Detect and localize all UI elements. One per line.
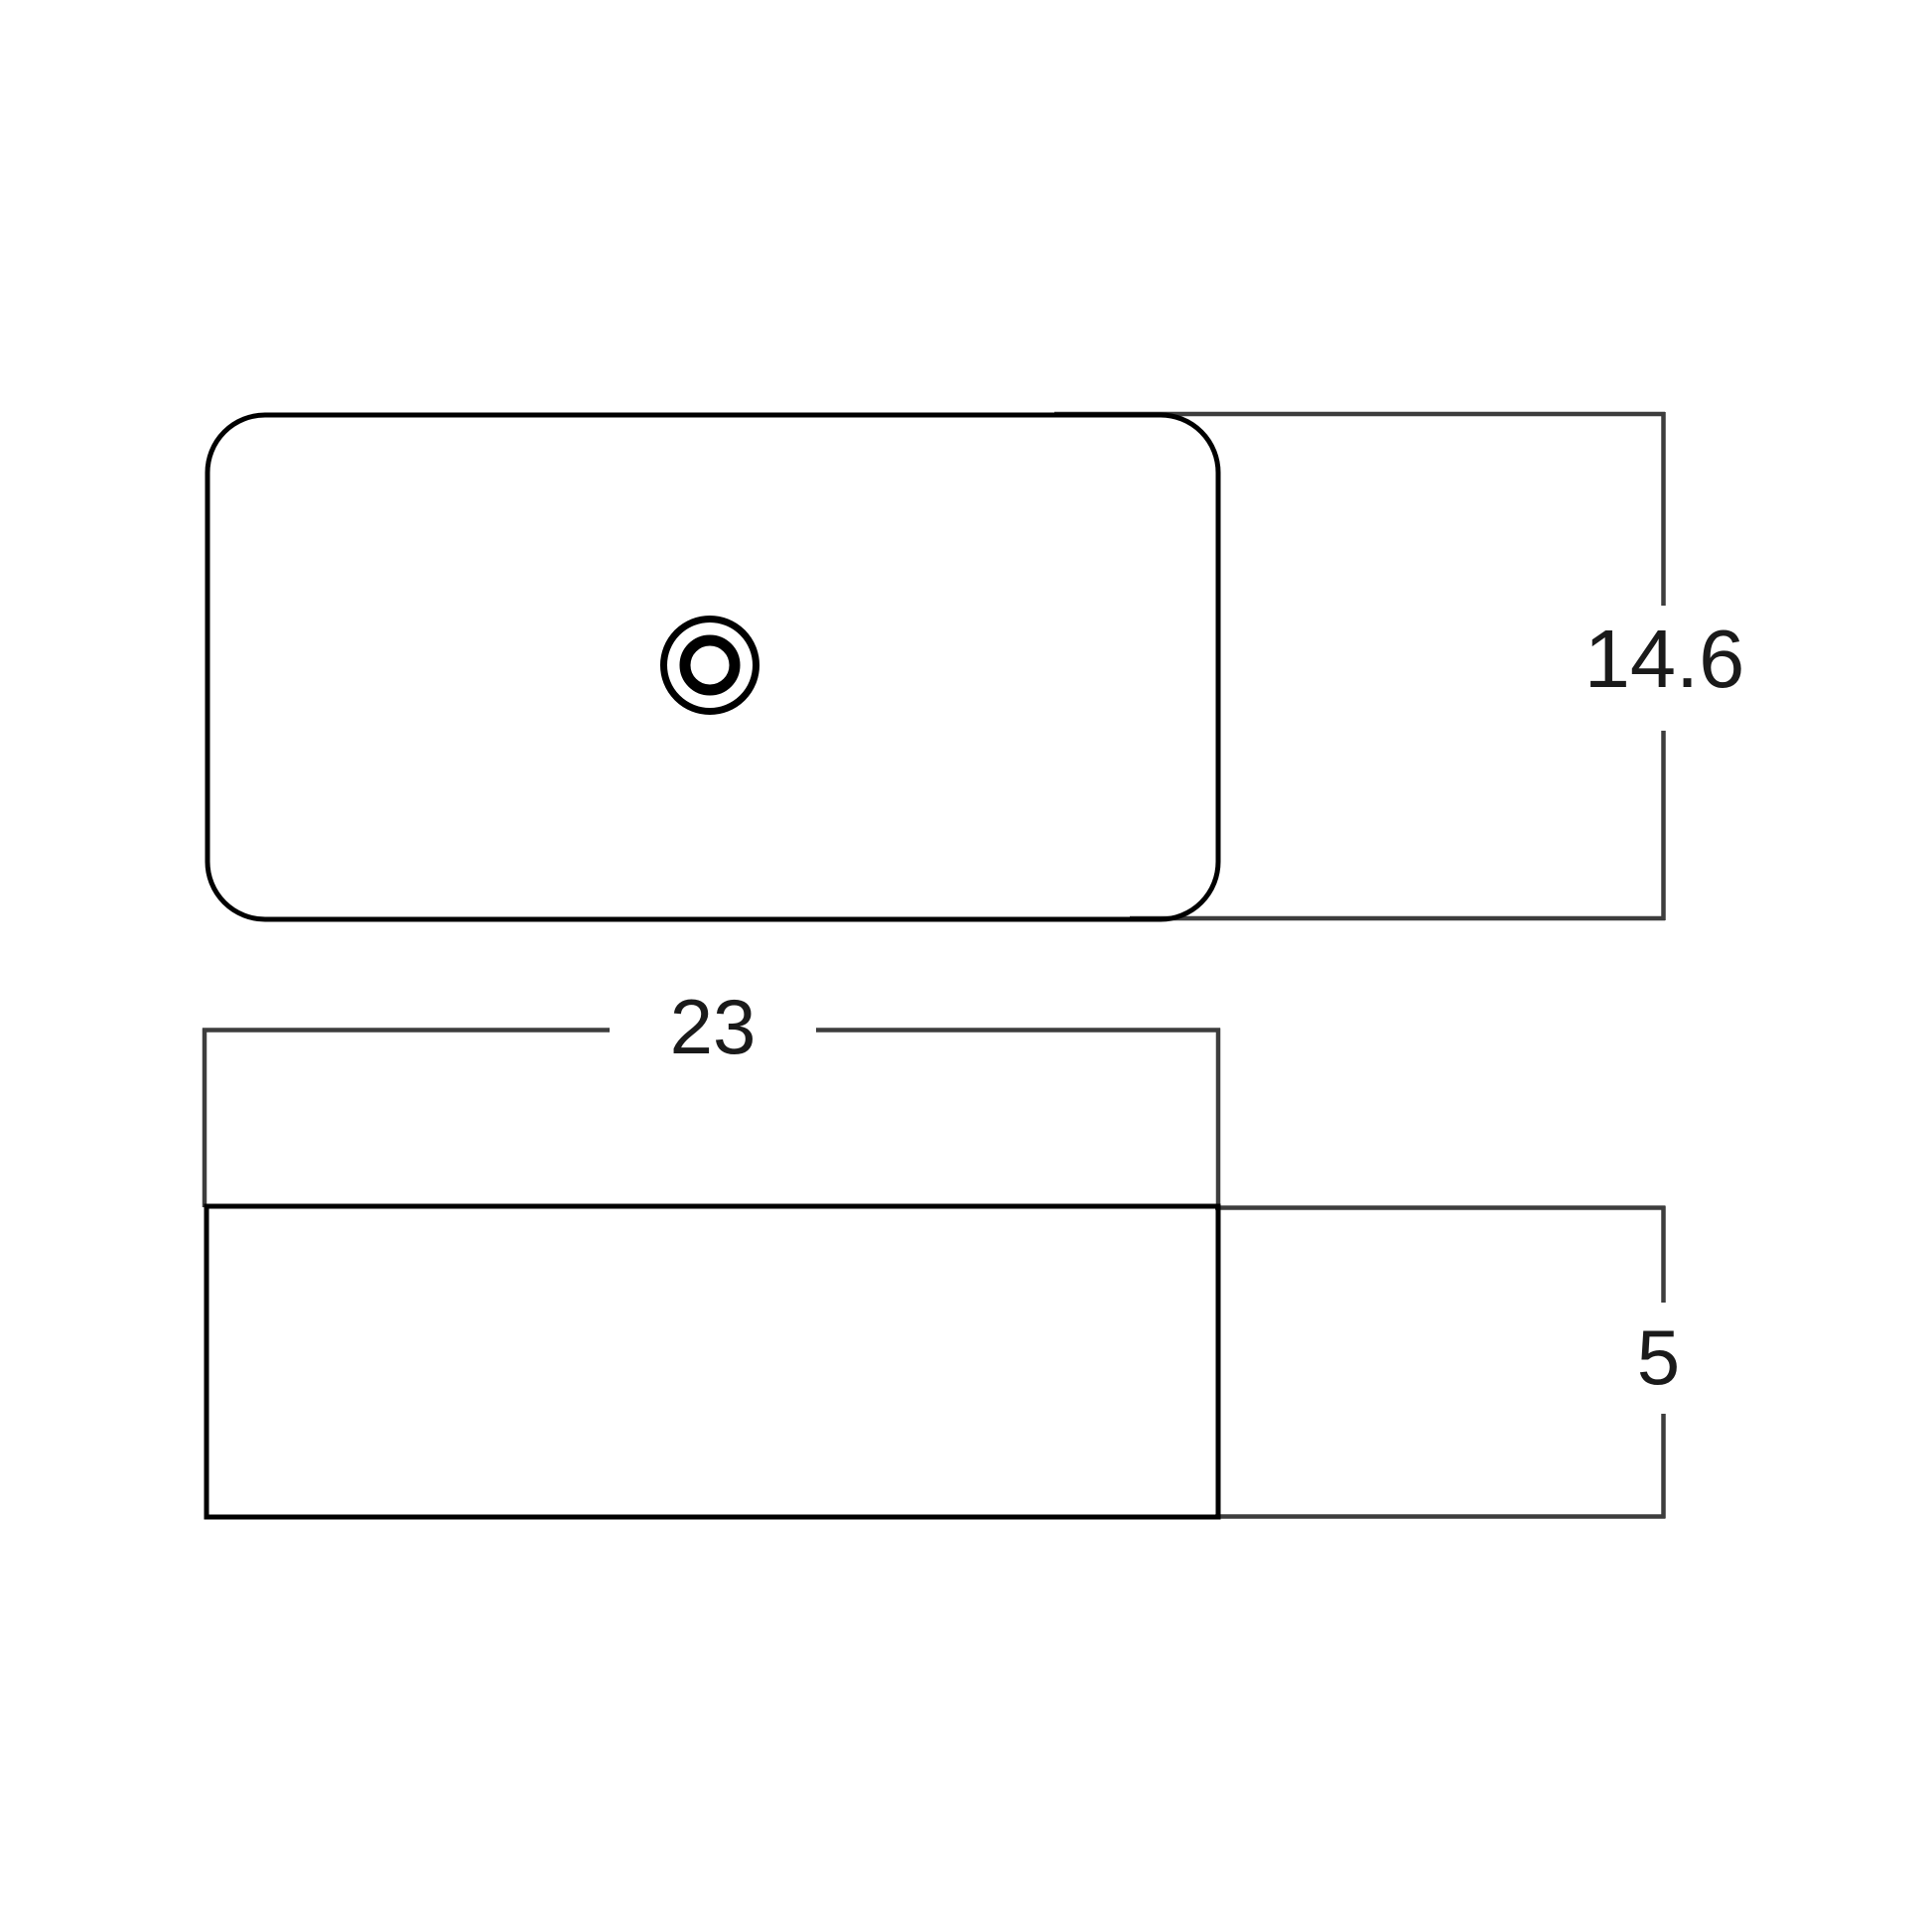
svg-text:5: 5 <box>1637 1313 1680 1401</box>
svg-text:23: 23 <box>670 983 757 1070</box>
svg-text:14.6: 14.6 <box>1585 613 1745 705</box>
